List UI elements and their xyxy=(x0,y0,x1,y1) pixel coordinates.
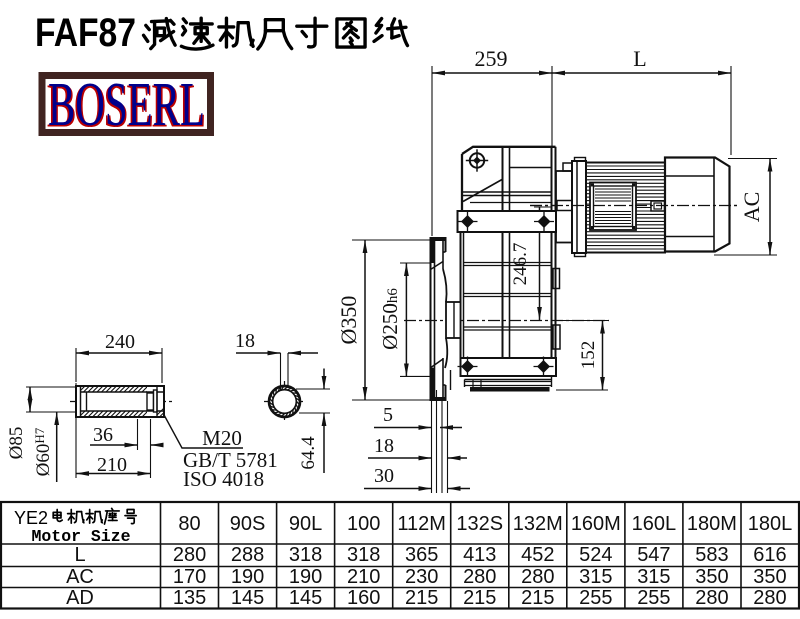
svg-text:190: 190 xyxy=(231,566,264,588)
svg-text:210: 210 xyxy=(97,454,127,476)
svg-text:350: 350 xyxy=(753,566,786,588)
svg-text:255: 255 xyxy=(579,587,612,609)
svg-text:AD: AD xyxy=(66,587,94,609)
svg-text:132S: 132S xyxy=(456,513,503,535)
svg-text:AC: AC xyxy=(739,192,764,223)
svg-text:M20: M20 xyxy=(202,426,242,450)
svg-text:FAF87: FAF87 xyxy=(35,11,136,55)
svg-text:190: 190 xyxy=(289,566,322,588)
svg-text:246.7: 246.7 xyxy=(510,243,531,286)
svg-text:547: 547 xyxy=(637,544,670,566)
svg-text:Ø85: Ø85 xyxy=(6,427,27,460)
svg-text:64.4: 64.4 xyxy=(298,436,319,470)
svg-text:BOSERL: BOSERL xyxy=(48,71,205,139)
svg-text:18: 18 xyxy=(374,435,394,457)
svg-text:318: 318 xyxy=(347,544,380,566)
svg-text:215: 215 xyxy=(463,587,496,609)
svg-text:315: 315 xyxy=(637,566,670,588)
svg-text:152: 152 xyxy=(578,341,599,370)
svg-text:280: 280 xyxy=(753,587,786,609)
svg-text:Motor Size: Motor Size xyxy=(31,527,130,546)
svg-text:90L: 90L xyxy=(289,513,322,535)
svg-text:240: 240 xyxy=(105,331,135,353)
svg-text:524: 524 xyxy=(579,544,612,566)
svg-text:36: 36 xyxy=(93,424,113,446)
svg-text:100: 100 xyxy=(347,513,380,535)
svg-text:452: 452 xyxy=(521,544,554,566)
svg-text:180M: 180M xyxy=(687,513,737,535)
svg-text:160M: 160M xyxy=(571,513,621,535)
svg-text:318: 318 xyxy=(289,544,322,566)
svg-text:145: 145 xyxy=(289,587,322,609)
svg-text:365: 365 xyxy=(405,544,438,566)
svg-text:315: 315 xyxy=(579,566,612,588)
svg-text:160L: 160L xyxy=(632,513,677,535)
svg-text:288: 288 xyxy=(231,544,264,566)
svg-text:112M: 112M xyxy=(397,513,446,535)
svg-text:350: 350 xyxy=(695,566,728,588)
svg-text:280: 280 xyxy=(173,544,206,566)
svg-text:30: 30 xyxy=(374,465,394,487)
svg-text:259: 259 xyxy=(475,46,508,71)
svg-text:413: 413 xyxy=(463,544,496,566)
svg-text:L: L xyxy=(633,46,646,71)
svg-text:18: 18 xyxy=(235,330,255,352)
svg-text:215: 215 xyxy=(521,587,554,609)
svg-text:280: 280 xyxy=(521,566,554,588)
svg-text:145: 145 xyxy=(231,587,264,609)
svg-text:280: 280 xyxy=(695,587,728,609)
svg-text:180L: 180L xyxy=(748,513,793,535)
svg-text:583: 583 xyxy=(695,544,728,566)
svg-text:215: 215 xyxy=(405,587,438,609)
svg-text:135: 135 xyxy=(173,587,206,609)
svg-text:90S: 90S xyxy=(230,513,266,535)
svg-text:255: 255 xyxy=(637,587,670,609)
svg-text:ISO 4018: ISO 4018 xyxy=(183,467,264,491)
svg-text:170: 170 xyxy=(173,566,206,588)
svg-text:132M: 132M xyxy=(513,513,563,535)
svg-text:AC: AC xyxy=(66,566,94,588)
svg-text:Ø350: Ø350 xyxy=(336,296,361,345)
svg-text:80: 80 xyxy=(178,513,200,535)
svg-text:230: 230 xyxy=(405,566,438,588)
svg-text:160: 160 xyxy=(347,587,380,609)
svg-text:L: L xyxy=(74,544,85,566)
svg-text:616: 616 xyxy=(753,544,786,566)
svg-text:210: 210 xyxy=(347,566,380,588)
svg-text:YE2: YE2 xyxy=(14,508,48,528)
svg-text:5: 5 xyxy=(383,404,393,426)
svg-text:280: 280 xyxy=(463,566,496,588)
